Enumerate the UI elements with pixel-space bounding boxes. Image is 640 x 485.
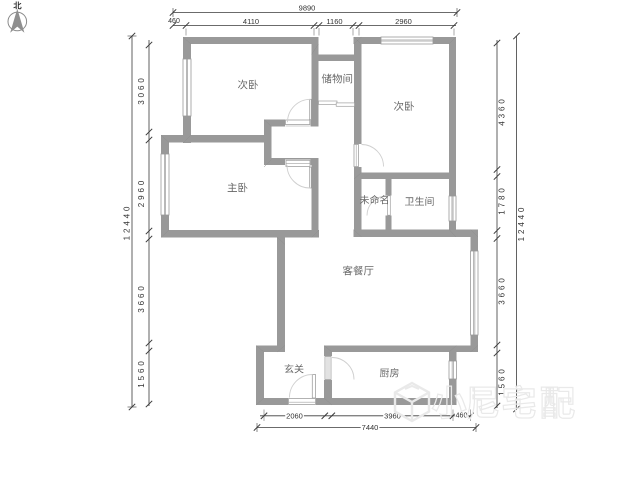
svg-text:3660: 3660 [137, 283, 146, 312]
svg-text:2960: 2960 [395, 17, 412, 26]
svg-text:9890: 9890 [299, 4, 316, 13]
svg-text:1560: 1560 [137, 358, 146, 387]
svg-text:2060: 2060 [286, 411, 303, 420]
svg-text:4360: 4360 [498, 96, 507, 125]
svg-text:3060: 3060 [137, 75, 146, 104]
svg-text:2960: 2960 [137, 178, 146, 207]
svg-text:460: 460 [168, 18, 180, 25]
svg-text:460: 460 [456, 412, 468, 419]
svg-text:7440: 7440 [362, 423, 379, 432]
svg-text:12440: 12440 [517, 205, 526, 242]
svg-text:1560: 1560 [498, 366, 507, 395]
svg-text:3660: 3660 [498, 275, 507, 304]
svg-text:12440: 12440 [123, 204, 132, 241]
svg-text:1780: 1780 [498, 185, 507, 214]
svg-text:4110: 4110 [243, 17, 259, 26]
svg-text:1160: 1160 [326, 17, 342, 26]
